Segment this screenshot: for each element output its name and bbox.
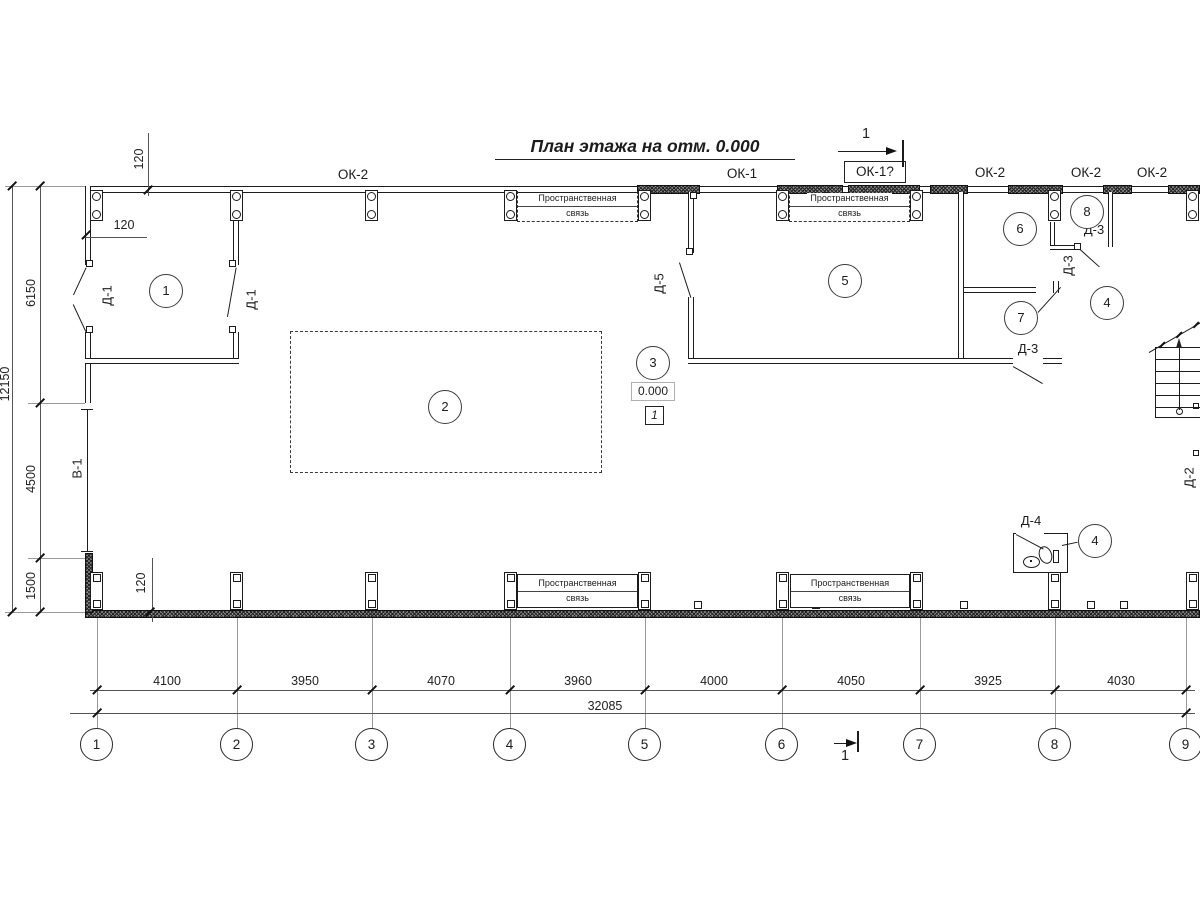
room-number: 4 — [1078, 524, 1112, 558]
column — [365, 572, 378, 610]
wall-pilaster — [1120, 601, 1128, 609]
brace-label-line1: Пространственная — [535, 193, 619, 203]
room-number: 7 — [1004, 301, 1038, 335]
door-leaf-d3-room8 — [1080, 249, 1100, 267]
spatial-brace-box: Пространственная связь — [517, 191, 638, 222]
door-stop — [229, 260, 236, 267]
window-label-ok2: ОК-2 — [330, 167, 376, 182]
stair-tread — [1155, 383, 1200, 384]
room1-bottom-wall — [85, 358, 239, 364]
exterior-wall-bottom — [85, 610, 1200, 618]
wall-pilaster — [690, 192, 697, 199]
dimension-line-total — [70, 713, 1195, 714]
elevation-mark: 0.000 — [631, 382, 675, 401]
dim-value: 4050 — [821, 674, 881, 688]
column — [638, 572, 651, 610]
gate-v1-label: В-1 — [70, 452, 85, 486]
column — [638, 190, 651, 221]
gate-v1-end-bar — [81, 409, 93, 410]
stair-up-arrow-line — [1179, 342, 1180, 410]
section-arrow-line-top — [838, 151, 892, 152]
room5-bottom-wall — [688, 358, 1013, 364]
dim-value: 4000 — [684, 674, 744, 688]
section-number-bottom: 1 — [835, 748, 855, 764]
column — [90, 572, 103, 610]
drawing-title: План этажа на отм. 0.000 — [495, 136, 795, 160]
door-label-d3: Д-3 — [1061, 249, 1076, 283]
dim-value: 6150 — [24, 265, 38, 321]
column — [504, 190, 517, 221]
door-label-d1: Д-1 — [244, 283, 259, 317]
grid-bubble: 7 — [903, 728, 936, 761]
room6-divider-wall — [958, 192, 964, 358]
dimension-line-left-outer — [12, 186, 13, 612]
extension-line — [5, 186, 85, 187]
section-arrow-bar-top — [902, 140, 904, 167]
dim-value: 3950 — [275, 674, 335, 688]
column — [1186, 190, 1199, 221]
extension-line — [5, 612, 85, 613]
door-leaf-d1-left-a — [73, 267, 87, 295]
gate-v1-end-bar — [81, 551, 93, 552]
room1-right-wall-lower — [233, 332, 239, 358]
grid-bubble: 5 — [628, 728, 661, 761]
grid-bubble: 1 — [80, 728, 113, 761]
column — [1186, 572, 1199, 610]
grid-bubble: 3 — [355, 728, 388, 761]
room-number: 2 — [428, 390, 462, 424]
grid-bubble: 9 — [1169, 728, 1200, 761]
brace-mid-line — [791, 591, 909, 592]
grid-bubble: 6 — [765, 728, 798, 761]
section-arrowhead-bottom — [846, 739, 857, 747]
spatial-brace-box: Пространственная связь — [789, 191, 910, 222]
column — [230, 190, 243, 221]
wall-pilaster — [1087, 601, 1095, 609]
room8-left-wall — [1050, 222, 1055, 247]
stair-up-arrowhead — [1176, 338, 1182, 348]
window-label-ok2: ОК-2 — [1063, 165, 1109, 180]
room-number: 5 — [828, 264, 862, 298]
gate-v1-line — [87, 410, 88, 552]
column — [1048, 572, 1061, 610]
room-number: 8 — [1070, 195, 1104, 229]
door-label-d4: Д-4 — [1013, 513, 1049, 528]
wall-pilaster — [694, 601, 702, 609]
room5-left-wall-upper — [688, 192, 694, 253]
brace-label-line1: Пространственная — [535, 578, 619, 588]
room-number: 4 — [1090, 286, 1124, 320]
dim-value: 4500 — [24, 451, 38, 507]
window-label-ok2: ОК-2 — [967, 165, 1013, 180]
stair-tread — [1155, 417, 1200, 418]
room8-right-wall — [1108, 192, 1113, 247]
wall-thickness-label: 120 — [134, 563, 148, 603]
door-leaf-d1-room1 — [227, 268, 237, 317]
door-label-d1: Д-1 — [100, 279, 115, 313]
column — [776, 190, 789, 221]
window-label-ok1: ОК-1 — [719, 166, 765, 181]
wall-pilaster — [960, 601, 968, 609]
section-arrow-bar-bottom — [857, 731, 859, 752]
column — [910, 190, 923, 221]
room-number: 6 — [1003, 212, 1037, 246]
door-leaf-d3-room6 — [1038, 287, 1062, 313]
brace-label-line2: связь — [835, 208, 864, 218]
brace-label-line2: связь — [563, 593, 592, 603]
brace-label-line1: Пространственная — [808, 578, 892, 588]
brace-label-line1: Пространственная — [807, 193, 891, 203]
room-number: 3 — [636, 346, 670, 380]
spatial-brace-box: Пространственная связь — [517, 574, 638, 608]
column — [230, 572, 243, 610]
grid-bubble: 4 — [493, 728, 526, 761]
brace-label-line2: связь — [563, 208, 592, 218]
stair-tread — [1155, 359, 1200, 360]
spatial-brace-box: Пространственная связь — [790, 574, 910, 608]
brace-mid-line — [790, 206, 909, 207]
room5-left-wall-lower — [688, 297, 694, 358]
stair-left-edge — [1155, 347, 1156, 418]
door-stop — [1193, 450, 1199, 456]
door-leaf-d1-left-b — [73, 304, 87, 332]
dim-value: 4100 — [137, 674, 197, 688]
stair-tread — [1155, 395, 1200, 396]
column — [1048, 190, 1061, 221]
brace-label-line2: связь — [836, 593, 865, 603]
room7-top-wall — [964, 287, 1036, 293]
stair-arrow-start-circle — [1176, 408, 1183, 415]
wall-thickness-label: 120 — [132, 139, 146, 179]
room-number: 1 — [149, 274, 183, 308]
window-label-ok1q-box: ОК-1? — [844, 161, 906, 183]
section-number-top: 1 — [856, 126, 876, 142]
dim-value: 3925 — [958, 674, 1018, 688]
dim-value: 4030 — [1091, 674, 1151, 688]
door-stop — [86, 260, 93, 267]
door-label-d5: Д-5 — [652, 267, 667, 301]
brace-mid-line — [518, 206, 637, 207]
stair-tread — [1155, 371, 1200, 372]
callout-line — [152, 558, 153, 622]
grid-bubble: 8 — [1038, 728, 1071, 761]
section-arrowhead-top — [886, 147, 897, 155]
wall-thickness-label: 120 — [104, 218, 144, 232]
dim-total-left: 12150 — [0, 356, 12, 412]
callout-line — [83, 237, 147, 238]
window-label-ok2: ОК-2 — [1129, 165, 1175, 180]
brace-mid-line — [518, 591, 637, 592]
column — [910, 572, 923, 610]
door-stop — [86, 326, 93, 333]
column — [504, 572, 517, 610]
room7-bottom-wall-stub — [1043, 358, 1062, 364]
dim-value: 1500 — [24, 558, 38, 614]
column — [776, 572, 789, 610]
dim-total-bottom: 32085 — [575, 699, 635, 713]
door-leaf-d3-room7 — [1013, 366, 1043, 384]
column — [90, 190, 103, 221]
door-label-d2: Д-2 — [1182, 461, 1197, 495]
sink-tap-dot — [1030, 560, 1032, 562]
dim-value: 3960 — [548, 674, 608, 688]
sink-icon — [1023, 556, 1040, 568]
node-marker: 1 — [645, 406, 664, 425]
door-stop — [229, 326, 236, 333]
toilet-tank-icon — [1053, 550, 1059, 563]
grid-bubble: 2 — [220, 728, 253, 761]
column — [365, 190, 378, 221]
door-stop — [686, 248, 693, 255]
dim-value: 4070 — [411, 674, 471, 688]
exterior-wall-left-mid — [85, 332, 91, 403]
door-leaf-d5 — [679, 262, 692, 298]
door-label-d3: Д-3 — [1010, 341, 1046, 356]
floor-plan-drawing: План этажа на отм. 0.000 — [0, 0, 1200, 900]
